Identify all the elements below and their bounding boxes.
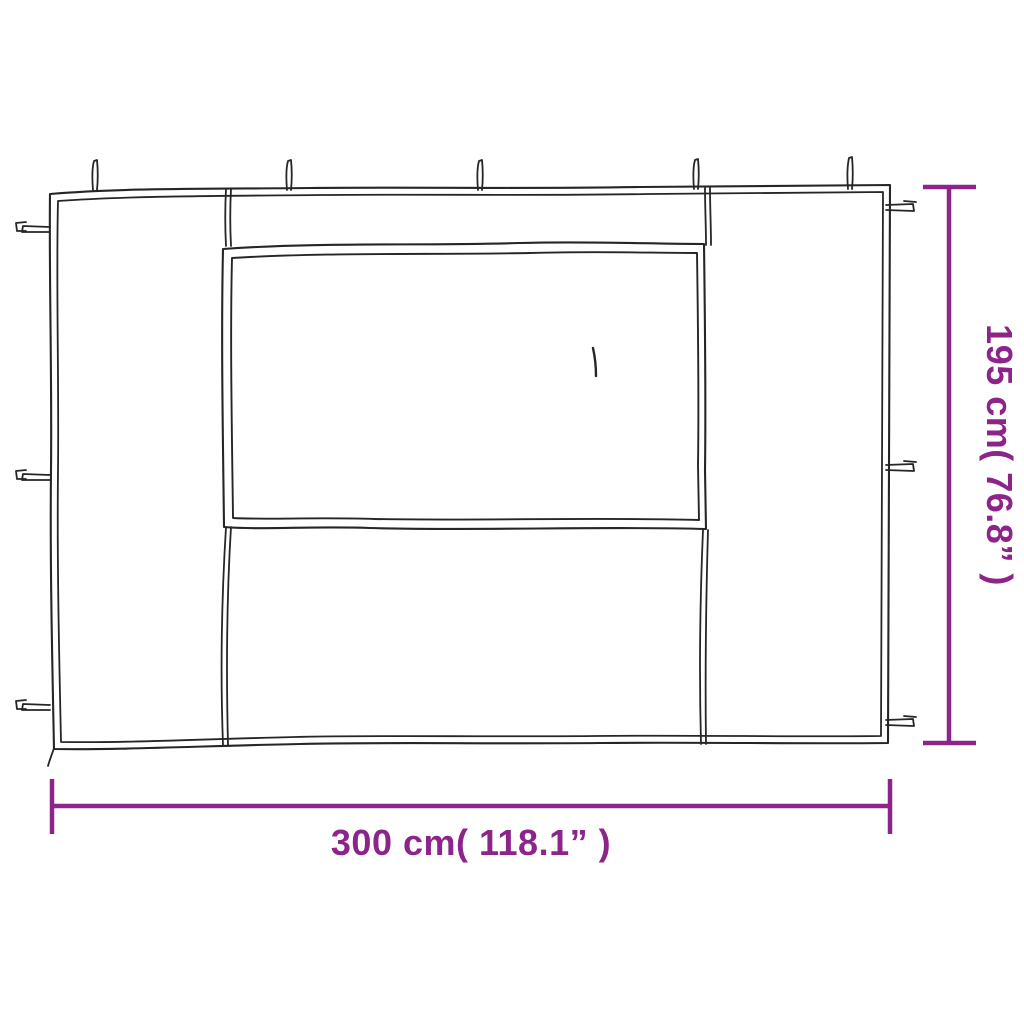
width-dimension-label: 300 cm( 118.1” ) (52, 822, 890, 864)
product-dimension-diagram: 300 cm( 118.1” ) 195 cm( 76.8” ) (0, 0, 1024, 1024)
sidewall-panel-drawing (16, 157, 916, 766)
sidewall-drawing-svg (0, 0, 1024, 1024)
height-dimension-label: 195 cm( 76.8” ) (978, 324, 1020, 586)
window-frame-outer (222, 242, 706, 529)
corner-overshoot-mark (48, 748, 54, 766)
height-dimension-line (923, 187, 976, 743)
top-tie-loops (92, 157, 852, 190)
panel-outline-outer (50, 185, 890, 749)
window-frame-inner (231, 252, 699, 520)
left-tie-straps (16, 222, 50, 710)
fabric-crease-mark (593, 348, 596, 376)
panel-outline-inner (57, 192, 883, 742)
